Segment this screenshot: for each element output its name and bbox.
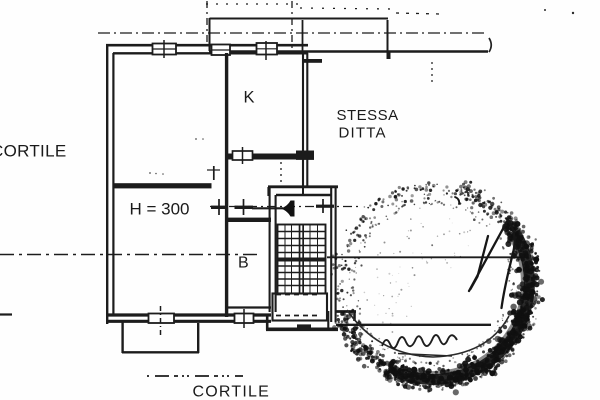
svg-text:CORTILE: CORTILE bbox=[0, 142, 66, 161]
svg-text:CORTILE: CORTILE bbox=[193, 384, 270, 400]
svg-text:H = 300: H = 300 bbox=[130, 200, 190, 219]
svg-text:STESSA: STESSA bbox=[337, 107, 399, 124]
svg-text:K: K bbox=[244, 89, 255, 107]
svg-text:DITTA: DITTA bbox=[339, 125, 387, 142]
svg-text:B: B bbox=[238, 255, 249, 272]
